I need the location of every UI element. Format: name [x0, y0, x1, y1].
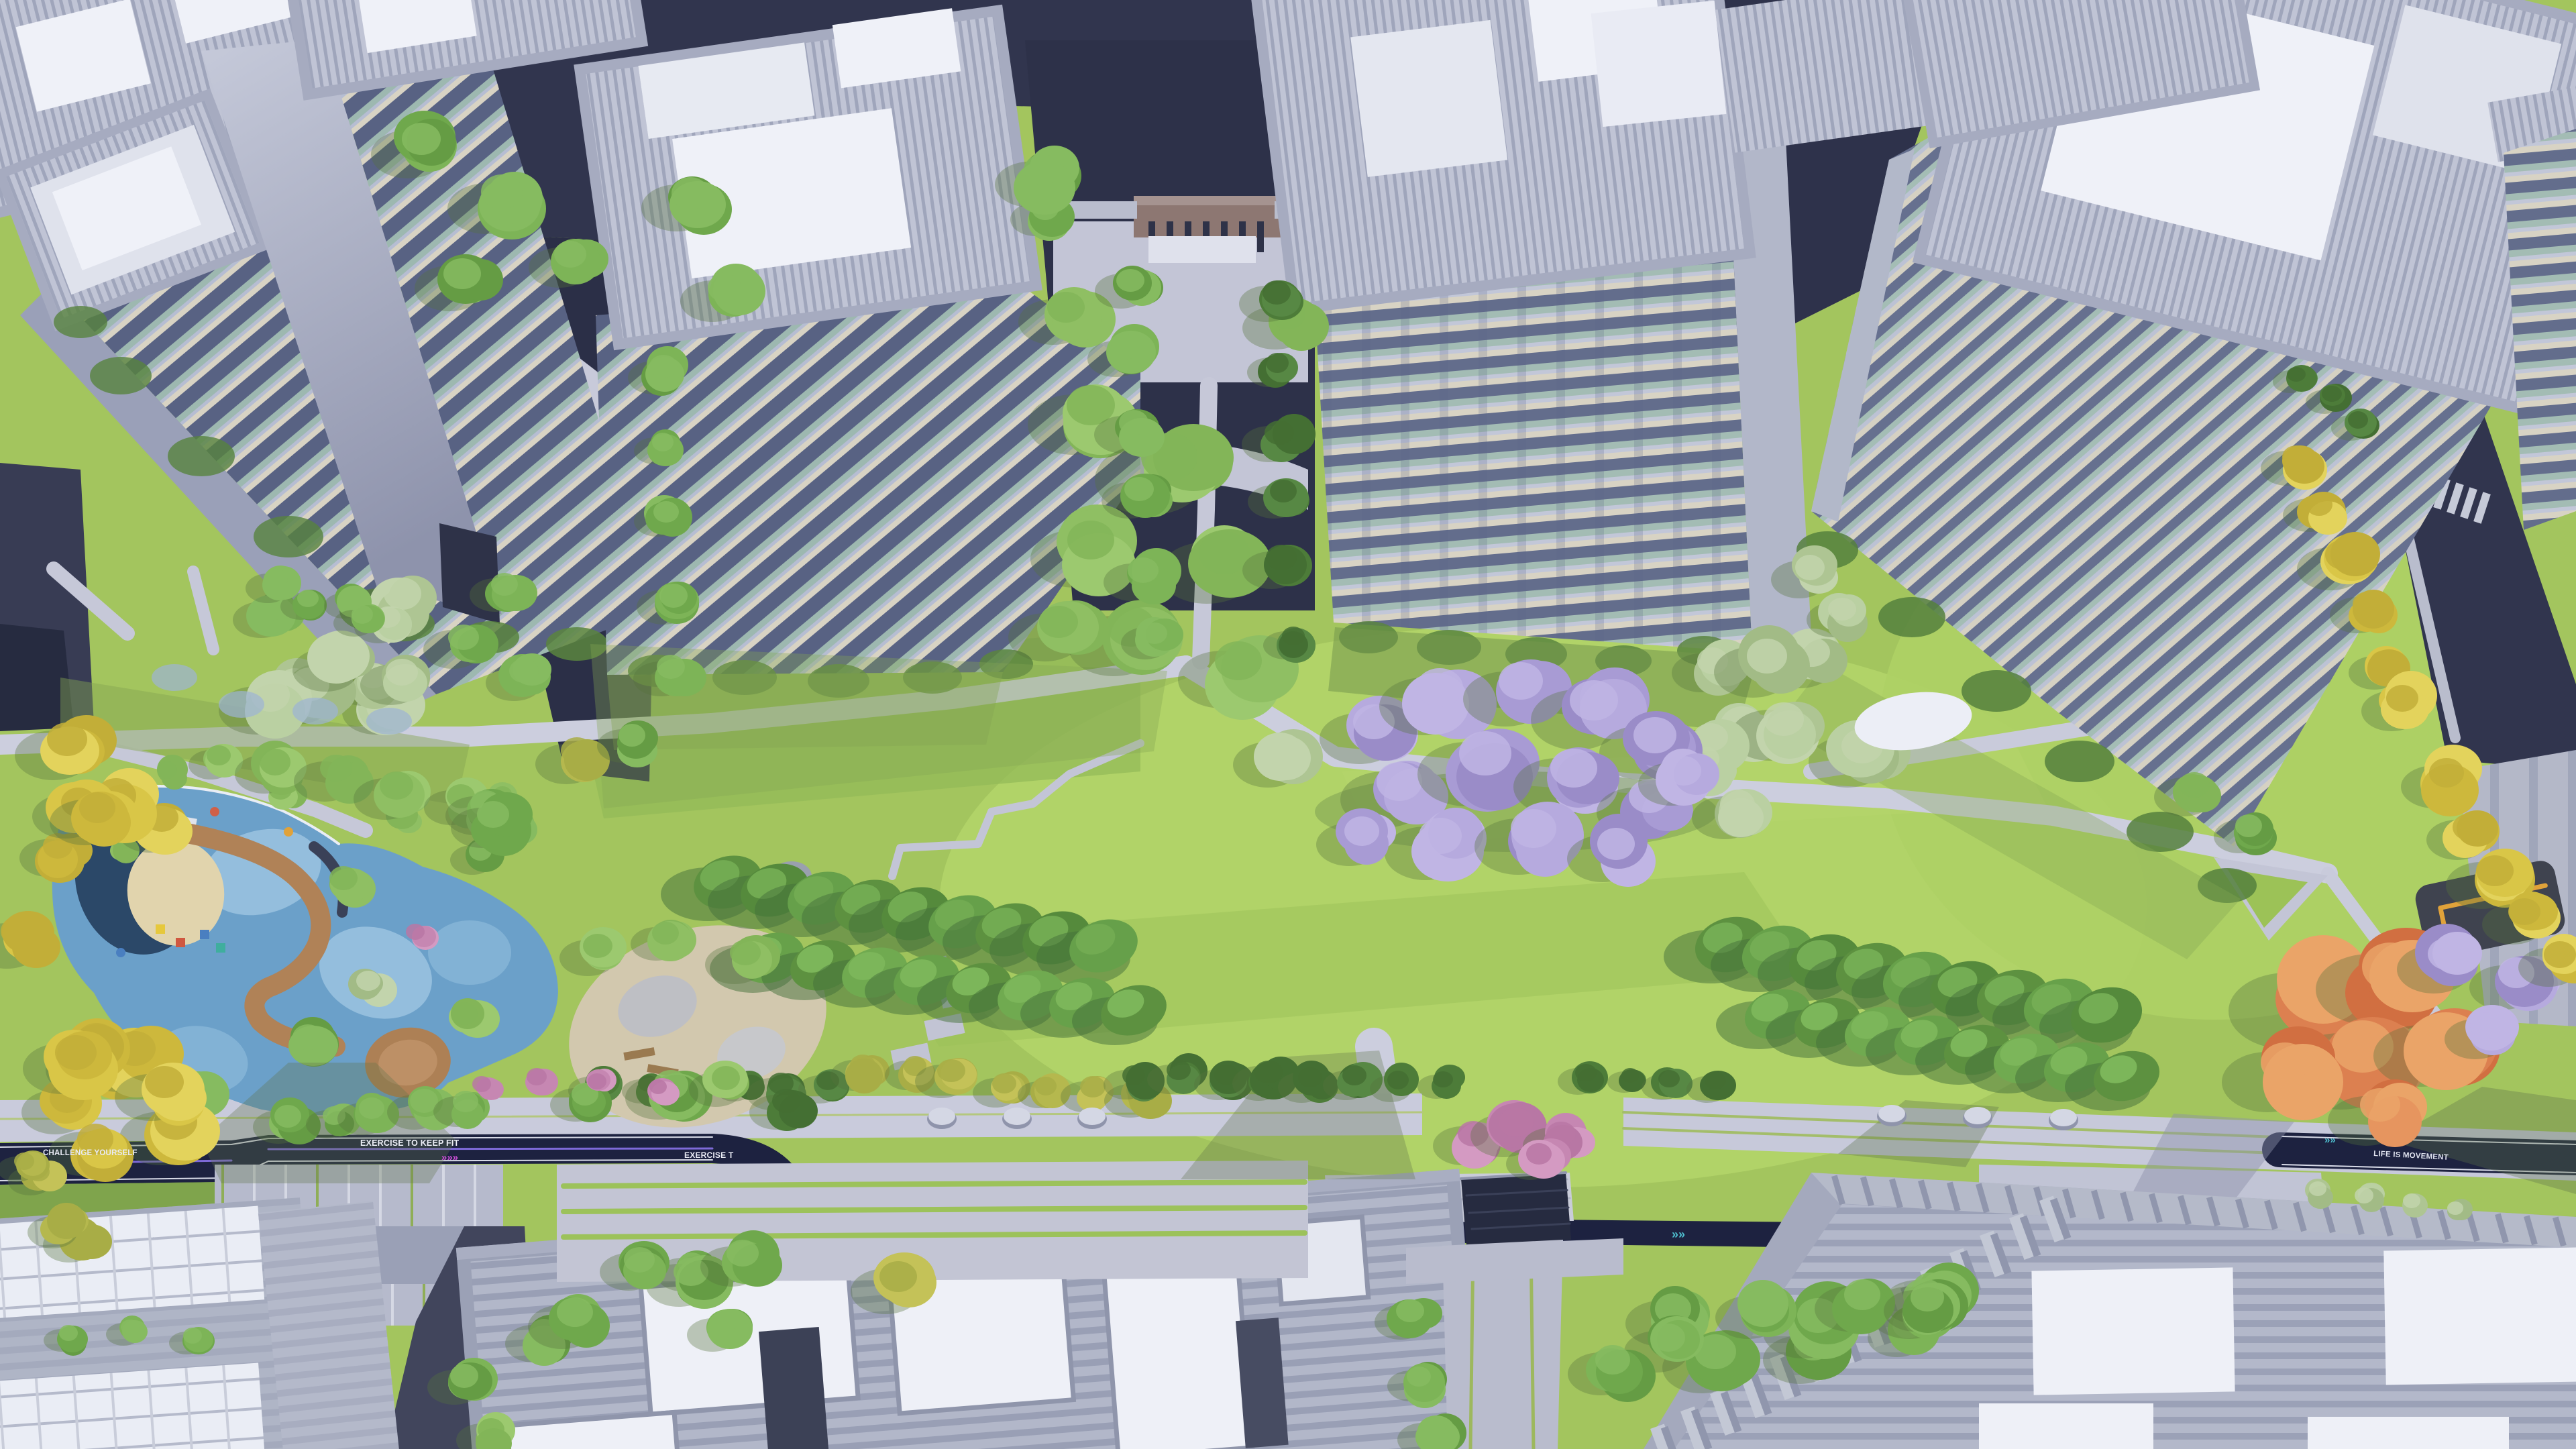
- svg-text:»»: »»: [1672, 1228, 1685, 1241]
- svg-text:»»: »»: [2324, 1134, 2336, 1146]
- svg-text:EXERCISE T: EXERCISE T: [684, 1150, 734, 1160]
- svg-text:CHALLENGE YOURSELF: CHALLENGE YOURSELF: [43, 1149, 138, 1157]
- svg-text:EXERCISE TO KEEP FIT: EXERCISE TO KEEP FIT: [360, 1138, 459, 1148]
- svg-text:»»»: »»»: [441, 1152, 458, 1163]
